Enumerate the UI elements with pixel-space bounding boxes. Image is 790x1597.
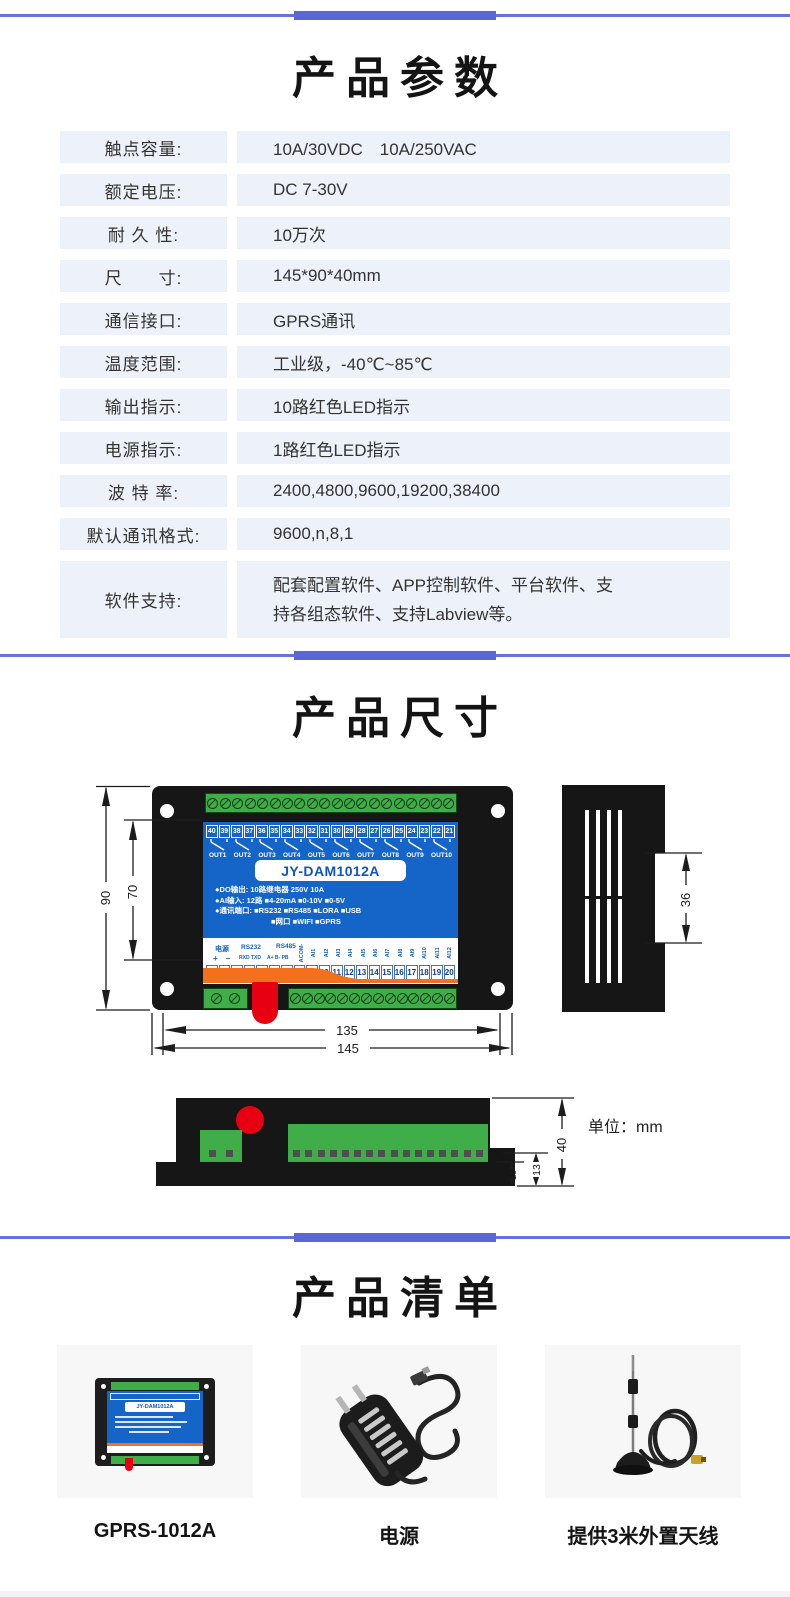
power-terminal-block	[203, 988, 248, 1009]
terminal-number: 30	[331, 825, 343, 838]
param-value: 2400,4800,9600,19200,38400	[237, 475, 730, 507]
param-label: 默认通讯格式:	[60, 518, 227, 550]
io-terminal-screws	[289, 989, 456, 1008]
card-caption: 提供3米外置天线	[545, 1520, 741, 1549]
terminal-pin	[403, 1150, 410, 1157]
device-side-view	[562, 785, 665, 1012]
analog-pin-labels: ACOM-AI1AI2AI3AI4AI5AI6AI7AI8AI9AI10AI11…	[296, 939, 456, 964]
spec-line: ■网口 ■WIFI ■GPRS	[215, 917, 361, 928]
terminal-number: 21	[444, 825, 456, 838]
param-row: 额定电压:DC 7-30V	[60, 174, 730, 206]
divider-bar	[294, 11, 496, 20]
mini-antenna-connector	[125, 1458, 133, 1471]
terminal-number: 23	[419, 825, 431, 838]
spec-line: ●通讯端口: ■RS232 ■RS485 ■LORA ■USB	[215, 906, 361, 917]
terminal-number: 39	[219, 825, 231, 838]
dim-90: 90	[98, 891, 113, 905]
param-row: 通信接口:GPRS通讯	[60, 303, 730, 335]
param-row: 输出指示:10路红色LED指示	[60, 389, 730, 421]
page-root: { "sections": { "params_title": "产品参数", …	[0, 0, 790, 1597]
terminal-number: 38	[231, 825, 243, 838]
dim-135: 135	[336, 1023, 358, 1038]
screw-icon	[344, 798, 355, 809]
terminal-number: 24	[406, 825, 418, 838]
screw-icon	[420, 993, 431, 1004]
terminal-pin	[366, 1150, 373, 1157]
terminal-number: 34	[281, 825, 293, 838]
param-label: 软件支持:	[60, 561, 227, 638]
pin-label: AI6	[370, 939, 382, 964]
pin-label-text: AI8	[398, 948, 404, 957]
antenna-connector	[252, 982, 278, 1024]
pin-label-text: AI3	[336, 948, 342, 957]
pin-label: AI9	[407, 939, 419, 964]
param-label: 通信接口:	[60, 303, 227, 335]
screw-icon	[385, 993, 396, 1004]
terminal-pin	[427, 1150, 434, 1157]
pin-label: AI2	[321, 939, 333, 964]
pin-label: AI1	[308, 939, 320, 964]
param-row: 耐 久 性:10万次	[60, 217, 730, 249]
divider-bar	[294, 651, 496, 660]
pin-label: AI10	[419, 939, 431, 964]
relay-contact-row	[206, 839, 455, 851]
relay-contact-icon	[256, 839, 280, 851]
param-value-text: 2400,4800,9600,19200,38400	[273, 481, 500, 501]
rs485-label: RS485	[276, 943, 296, 950]
screw-icon	[419, 798, 430, 809]
param-value-text: 配套配置软件、APP控制软件、平台软件、支持各组态软件、支持Labview等。	[273, 571, 625, 629]
relay-contact-icon	[331, 839, 355, 851]
product-card-power: 电源	[301, 1345, 497, 1549]
terminal-pin	[342, 1150, 349, 1157]
power-terminal-screws	[204, 989, 247, 1008]
pin-label-text: AI7	[385, 948, 391, 957]
pin-label-text: AI5	[361, 948, 367, 957]
spec-line: ●AI输入: 12路 ■4-20mA ■0-10V ■0-5V	[215, 896, 361, 907]
pin-label: AI8	[395, 939, 407, 964]
relay-contact-icon	[281, 839, 305, 851]
out-label: OUT9	[406, 852, 423, 861]
pin-label-text: AI10	[422, 947, 428, 959]
screw-icon	[207, 798, 218, 809]
dim-40: 40	[554, 1138, 569, 1152]
screw-icon	[356, 798, 367, 809]
param-value-text: 145*90*40mm	[273, 266, 381, 286]
terminal-pin	[451, 1150, 458, 1157]
terminal-number: 31	[319, 825, 331, 838]
param-value-text: DC 7-30V	[273, 180, 348, 200]
bottom-power-terminal	[200, 1130, 242, 1162]
screw-icon	[307, 798, 318, 809]
screw-icon	[394, 798, 405, 809]
device-front-view: 4039383736353433323130292827262524232221…	[152, 786, 513, 1010]
device-photo: JY-DAM1012A	[57, 1345, 253, 1498]
top-terminal-screws	[206, 794, 456, 812]
mounting-hole-icon	[160, 982, 174, 996]
relay-contact-icon	[207, 839, 231, 851]
unit-note: 单位：mm	[588, 1113, 663, 1137]
power-adapter-illustration	[301, 1345, 497, 1498]
screw-icon	[245, 798, 256, 809]
screw-icon	[432, 993, 443, 1004]
terminal-number: 25	[394, 825, 406, 838]
dimension-drawing: 4039383736353433323130292827262524232221…	[0, 755, 790, 1215]
dim-145: 145	[337, 1041, 359, 1056]
dim-70: 70	[125, 885, 140, 899]
card-caption: GPRS-1012A	[57, 1520, 253, 1543]
screw-icon	[211, 993, 222, 1004]
pin-label-text: ACOM-	[299, 943, 305, 962]
terminal-number: 22	[431, 825, 443, 838]
screw-icon	[257, 798, 268, 809]
param-row: 波 特 率:2400,4800,9600,19200,38400	[60, 475, 730, 507]
screw-icon	[444, 993, 455, 1004]
terminal-pin	[391, 1150, 398, 1157]
power-pins: + −	[213, 953, 230, 964]
param-label: 耐 久 性:	[60, 217, 227, 249]
param-label: 温度范围:	[60, 346, 227, 378]
param-value: 145*90*40mm	[237, 260, 730, 292]
pin-label: AI11	[431, 939, 443, 964]
section-divider	[0, 651, 790, 660]
spec-line: ●DO输出: 10路继电器 250V 10A	[215, 885, 361, 896]
terminal-pin	[330, 1150, 337, 1157]
screw-icon	[294, 798, 305, 809]
screw-icon	[302, 993, 313, 1004]
terminal-pin	[354, 1150, 361, 1157]
param-label: 尺 寸:	[60, 260, 227, 292]
front-label-panel: 4039383736353433323130292827262524232221…	[203, 822, 458, 938]
param-label: 触点容量:	[60, 131, 227, 163]
param-row: 尺 寸:145*90*40mm	[60, 260, 730, 292]
terminal-number: 40	[206, 825, 218, 838]
screw-icon	[332, 798, 343, 809]
param-value: 10路红色LED指示	[237, 389, 730, 421]
screw-icon	[443, 798, 454, 809]
screw-icon	[397, 993, 408, 1004]
terminal-pin	[318, 1150, 325, 1157]
terminal-number: 36	[256, 825, 268, 838]
screw-icon	[369, 798, 380, 809]
section-divider	[0, 11, 790, 20]
relay-contact-icon	[356, 839, 380, 851]
mini-device-illustration: JY-DAM1012A	[95, 1378, 215, 1466]
terminal-pin	[415, 1150, 422, 1157]
param-row: 温度范围:工业级，-40℃~85℃	[60, 346, 730, 378]
pin-label-text: AI12	[447, 947, 453, 959]
top-terminal-block	[205, 793, 457, 813]
screw-icon	[381, 798, 392, 809]
pin-label-text: AI6	[373, 948, 379, 957]
screw-icon	[406, 798, 417, 809]
screw-icon	[319, 798, 330, 809]
mounting-hole-icon	[491, 982, 505, 996]
screw-icon	[431, 798, 442, 809]
param-value-text: GPRS通讯	[273, 307, 355, 332]
param-value: 工业级，-40℃~85℃	[237, 346, 730, 378]
terminal-pin	[209, 1150, 216, 1157]
rs232-pins: RXD TXD	[239, 955, 261, 961]
terminal-pin	[305, 1150, 312, 1157]
param-label: 额定电压:	[60, 174, 227, 206]
divider-bar	[294, 1233, 496, 1242]
screw-icon	[337, 993, 348, 1004]
param-value: 10A/30VDC 10A/250VAC	[237, 131, 730, 163]
param-label: 电源指示:	[60, 432, 227, 464]
out-label: OUT1	[209, 852, 226, 861]
screw-icon	[229, 993, 240, 1004]
param-row: 触点容量:10A/30VDC 10A/250VAC	[60, 131, 730, 163]
dim-13: 13	[531, 1164, 543, 1176]
relay-contact-icon	[381, 839, 405, 851]
param-value-text: 1路红色LED指示	[273, 436, 401, 461]
params-title: 产品参数	[0, 42, 790, 106]
terminal-number: 28	[356, 825, 368, 838]
screw-icon	[408, 993, 419, 1004]
terminal-pin	[378, 1150, 385, 1157]
param-value: GPRS通讯	[237, 303, 730, 335]
param-label: 波 特 率:	[60, 475, 227, 507]
rs485-pins: A+ B- PB	[267, 955, 289, 961]
terminal-pin	[226, 1150, 233, 1157]
pin-label-text: AI4	[348, 948, 354, 957]
din-rail-tab	[655, 853, 691, 943]
pin-label-text: AI2	[324, 948, 330, 957]
product-card-antenna: 提供3米外置天线	[545, 1345, 741, 1549]
screw-icon	[232, 798, 243, 809]
bottom-io-terminal	[288, 1124, 488, 1162]
screw-icon	[349, 993, 360, 1004]
terminal-number: 26	[381, 825, 393, 838]
product-card-module: JY-DAM1012A GPRS-1012A	[57, 1345, 253, 1543]
screw-icon	[325, 993, 336, 1004]
section-divider	[0, 1233, 790, 1242]
orange-swoosh	[203, 965, 458, 983]
terminal-number: 35	[269, 825, 281, 838]
param-value: 配套配置软件、APP控制软件、平台软件、支持各组态软件、支持Labview等。	[237, 561, 730, 638]
screw-icon	[290, 993, 301, 1004]
pin-label: AI5	[358, 939, 370, 964]
pin-label-text: AI11	[435, 947, 441, 958]
param-row: 软件支持:配套配置软件、APP控制软件、平台软件、支持各组态软件、支持Labvi…	[60, 561, 730, 638]
params-table: 触点容量:10A/30VDC 10A/250VAC额定电压:DC 7-30V耐 …	[60, 131, 730, 649]
terminal-number: 29	[344, 825, 356, 838]
param-label: 输出指示:	[60, 389, 227, 421]
model-plate: JY-DAM1012A	[255, 860, 406, 881]
pin-label: AI12	[444, 939, 456, 964]
mounting-hole-icon	[491, 804, 505, 818]
param-value-text: 10A/30VDC 10A/250VAC	[273, 135, 477, 160]
param-value: 9600,n,8,1	[237, 518, 730, 550]
param-value-text: 工业级，-40℃~85℃	[273, 350, 433, 375]
pin-label-text: AI9	[410, 948, 416, 957]
relay-contact-icon	[430, 839, 454, 851]
antenna-photo	[545, 1345, 741, 1498]
terminal-pin	[293, 1150, 300, 1157]
screw-icon	[361, 993, 372, 1004]
bottom-view-base	[156, 1162, 515, 1186]
screw-icon	[220, 798, 231, 809]
spec-lines: ●DO输出: 10路继电器 250V 10A●AI输入: 12路 ■4-20mA…	[215, 885, 361, 927]
top-terminal-numbers: 4039383736353433323130292827262524232221	[206, 825, 455, 838]
param-value-text: 10路红色LED指示	[273, 393, 410, 418]
mini-model-plate: JY-DAM1012A	[125, 1402, 185, 1412]
terminal-number: 37	[244, 825, 256, 838]
out-label: OUT10	[431, 852, 452, 861]
list-title: 产品清单	[0, 1262, 790, 1326]
terminal-pin	[464, 1150, 471, 1157]
next-section-edge	[0, 1591, 790, 1597]
pin-label: ACOM-	[296, 939, 308, 964]
terminal-pin	[476, 1150, 483, 1157]
terminal-number: 32	[306, 825, 318, 838]
relay-contact-icon	[306, 839, 330, 851]
card-caption: 电源	[301, 1520, 497, 1549]
relay-contact-icon	[232, 839, 256, 851]
terminal-number: 33	[294, 825, 306, 838]
pin-label: AI4	[345, 939, 357, 964]
power-adapter-photo	[301, 1345, 497, 1498]
param-row: 默认通讯格式:9600,n,8,1	[60, 518, 730, 550]
antenna-illustration	[545, 1345, 741, 1498]
param-row: 电源指示:1路红色LED指示	[60, 432, 730, 464]
bottom-view-step	[490, 1148, 515, 1162]
screw-icon	[282, 798, 293, 809]
pin-label: AI7	[382, 939, 394, 964]
vent-slots-top	[585, 810, 622, 896]
param-value: DC 7-30V	[237, 174, 730, 206]
pin-label: AI3	[333, 939, 345, 964]
screw-icon	[270, 798, 281, 809]
pin-label-text: AI1	[311, 948, 317, 957]
param-value: 10万次	[237, 217, 730, 249]
terminal-pin	[439, 1150, 446, 1157]
param-value: 1路红色LED指示	[237, 432, 730, 464]
rs232-label: RS232	[241, 944, 261, 951]
screw-icon	[373, 993, 384, 1004]
param-value-text: 10万次	[273, 221, 326, 246]
param-value-text: 9600,n,8,1	[273, 524, 353, 544]
terminal-number: 27	[369, 825, 381, 838]
mounting-hole-icon	[160, 804, 174, 818]
screw-icon	[314, 993, 325, 1004]
dims-title: 产品尺寸	[0, 682, 790, 746]
relay-contact-icon	[405, 839, 429, 851]
io-terminal-block	[288, 988, 457, 1009]
vent-slots-bottom	[585, 899, 622, 983]
out-label: OUT2	[234, 852, 251, 861]
